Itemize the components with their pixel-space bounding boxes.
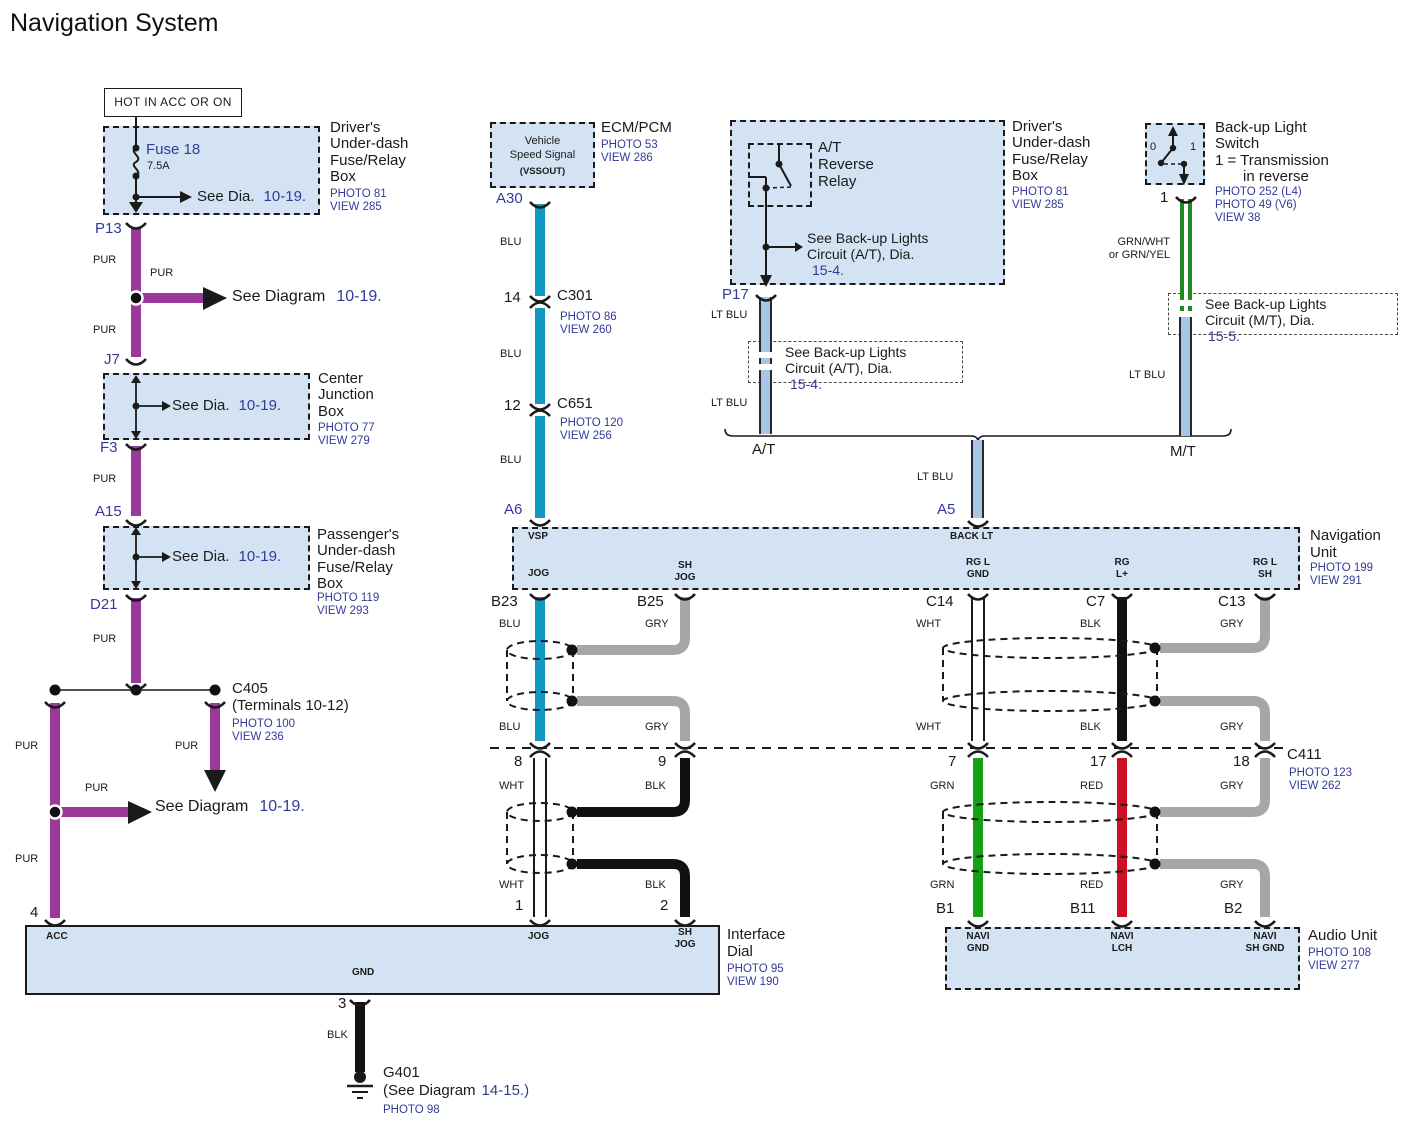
nav-pin-back-lt: BACK LT xyxy=(950,532,993,543)
trans-mt-label: M/T xyxy=(1170,444,1196,460)
driver-box-right-label: Driver'sUnder-dashFuse/RelayBox xyxy=(1012,119,1090,185)
audio-unit-label: Audio Unit xyxy=(1308,928,1377,944)
wire-label-ltblu: LT BLU xyxy=(1129,370,1165,382)
backup-switch-label: Back-up LightSwitch1 = Transmissionin re… xyxy=(1215,120,1329,186)
wire-label-pur: PUR xyxy=(15,854,38,866)
see-backup-at-inbox: See Back-up LightsCircuit (A/T), Dia.15-… xyxy=(807,230,928,278)
driver-box-left-ref: PHOTO 81VIEW 285 xyxy=(330,188,387,214)
interface-dial-ref: PHOTO 95VIEW 190 xyxy=(727,963,784,989)
at-relay-symbol xyxy=(748,145,803,287)
fuse-name: Fuse 18 xyxy=(146,142,200,158)
wire-label-gry: GRY xyxy=(645,619,669,631)
wire-label-blk: BLK xyxy=(327,1030,348,1042)
wiring-diagram: Navigation System HOT IN ACC OR ON Fuse … xyxy=(0,0,1406,1135)
fuse-see-dia: See Dia.10-19. xyxy=(197,189,306,205)
pin-c7: C7 xyxy=(1086,594,1105,610)
pin-j7: J7 xyxy=(104,352,120,368)
driver-box-right-ref: PHOTO 81VIEW 285 xyxy=(1012,186,1069,212)
c405-ref: PHOTO 100VIEW 236 xyxy=(232,718,295,744)
pin-switch-1: 1 xyxy=(1160,190,1168,206)
nav-pin-vsp: VSP xyxy=(528,532,548,543)
wire-label-red: RED xyxy=(1080,880,1103,892)
wire-label-ltblu: LT BLU xyxy=(917,472,953,484)
wire-label-gry: GRY xyxy=(1220,880,1244,892)
pin-b2: B2 xyxy=(1224,901,1242,917)
wire-label-wht: WHT xyxy=(499,880,524,892)
audio-pin-navi-gnd: NAVIGND xyxy=(950,931,1006,954)
c411-ref: PHOTO 123VIEW 262 xyxy=(1289,767,1352,793)
c651-name: C651 xyxy=(557,396,593,412)
pin-1: 1 xyxy=(515,898,523,914)
g401-name: G401 xyxy=(383,1065,420,1081)
wire-label-ltblu: LT BLU xyxy=(711,310,747,322)
ecm-ref: PHOTO 53VIEW 286 xyxy=(601,139,658,165)
wire-label-grn: GRN xyxy=(930,781,954,793)
wire-label-pur: PUR xyxy=(150,268,173,280)
wire-label-blu: BLU xyxy=(500,237,521,249)
wire-label-blk: BLK xyxy=(1080,722,1101,734)
pin-17: 17 xyxy=(1090,754,1107,770)
wire-label-pur: PUR xyxy=(93,474,116,486)
ground-symbol-g401 xyxy=(347,1071,373,1098)
wire-label-blk: BLK xyxy=(645,781,666,793)
shield-drain-wires xyxy=(577,597,1265,917)
wire-label-blu: BLU xyxy=(500,455,521,467)
driver-box-left-label: Driver'sUnder-dashFuse/RelayBox xyxy=(330,120,408,186)
g401-see-diagram: (See Diagram14-15.) xyxy=(383,1083,529,1099)
ecm-name: ECM/PCM xyxy=(601,120,672,136)
pin-b1: B1 xyxy=(936,901,954,917)
nav-pin-jog: JOG xyxy=(528,569,549,580)
passenger-see-dia: See Dia.10-19. xyxy=(172,549,281,565)
pin-9: 9 xyxy=(658,754,666,770)
nav-unit-ref: PHOTO 199VIEW 291 xyxy=(1310,562,1373,588)
g401-ref: PHOTO 98 xyxy=(383,1104,440,1117)
pin-p17: P17 xyxy=(722,287,749,303)
backup-switch-symbol xyxy=(1158,126,1189,185)
hot-in-acc-label: HOT IN ACC OR ON xyxy=(104,88,242,117)
see-diagram-ref-2: See Diagram10-19. xyxy=(155,799,305,816)
pin-c14: C14 xyxy=(926,594,954,610)
see-backup-mt-ref: See Back-up LightsCircuit (M/T), Dia.15-… xyxy=(1205,296,1326,344)
trans-at-label: A/T xyxy=(752,442,775,458)
c411-name: C411 xyxy=(1287,747,1322,763)
wire-label-pur: PUR xyxy=(85,783,108,795)
vss-label: VehicleSpeed Signal(VSSOUT) xyxy=(490,134,595,179)
interface-dial-label: InterfaceDial xyxy=(727,926,785,960)
pin-18: 18 xyxy=(1233,754,1250,770)
pin-a5: A5 xyxy=(937,502,955,518)
backup-switch-ref: PHOTO 252 (L4)PHOTO 49 (V6)VIEW 38 xyxy=(1215,186,1302,225)
cjb-internal-arrow xyxy=(131,375,171,439)
wire-label-red: RED xyxy=(1080,781,1103,793)
pin-7: 7 xyxy=(948,754,956,770)
wire-label-pur: PUR xyxy=(93,325,116,337)
pin-p13: P13 xyxy=(95,221,122,237)
c301-name: C301 xyxy=(557,288,593,304)
pin-4: 4 xyxy=(30,905,38,921)
passenger-box-ref: PHOTO 119VIEW 293 xyxy=(317,592,379,618)
dial-pin-acc: ACC xyxy=(46,932,68,943)
wire-label-pur: PUR xyxy=(175,741,198,753)
wire-label-wht: WHT xyxy=(916,722,941,734)
audio-pin-navi-lch: NAVILCH xyxy=(1094,931,1150,954)
wire-label-blu: BLU xyxy=(500,349,521,361)
wire-label-gry: GRY xyxy=(645,722,669,734)
switch-pos-0: 0 xyxy=(1150,142,1156,154)
shield-junction-dots xyxy=(567,643,1161,870)
wire-label-grnwht: GRN/WHTor GRN/YEL xyxy=(1075,236,1170,262)
pin-8: 8 xyxy=(514,754,522,770)
pin-b23: B23 xyxy=(491,594,518,610)
wire-label-blk: BLK xyxy=(645,880,666,892)
passenger-box-label: Passenger'sUnder-dashFuse/RelayBox xyxy=(317,527,399,593)
wire-label-blu: BLU xyxy=(499,619,520,631)
wire-label-pur: PUR xyxy=(93,634,116,646)
pin-d21: D21 xyxy=(90,597,118,613)
cjb-see-dia: See Dia.10-19. xyxy=(172,398,281,414)
pin-b11: B11 xyxy=(1070,901,1096,917)
c405-terminals: (Terminals 10-12) xyxy=(232,698,349,714)
pin-b25: B25 xyxy=(637,594,664,610)
wire-label-gry: GRY xyxy=(1220,619,1244,631)
page-title: Navigation System xyxy=(10,10,218,37)
wire-label-wht: WHT xyxy=(916,619,941,631)
wire-label-gry: GRY xyxy=(1220,722,1244,734)
pin-2: 2 xyxy=(660,898,668,914)
cjb-label: CenterJunctionBox xyxy=(318,371,374,420)
nav-unit-label: NavigationUnit xyxy=(1310,527,1381,561)
wire-label-gry: GRY xyxy=(1220,781,1244,793)
wire-label-pur: PUR xyxy=(93,255,116,267)
audio-pin-navi-shgnd: NAVISH GND xyxy=(1228,931,1302,954)
pin-c13: C13 xyxy=(1218,594,1246,610)
nav-pin-rg-lplus: RGL+ xyxy=(1094,557,1150,580)
at-relay-label: A/TReverseRelay xyxy=(818,139,874,190)
wire-label-blk: BLK xyxy=(1080,619,1101,631)
pin-a30: A30 xyxy=(496,191,523,207)
passenger-internal-arrow xyxy=(131,527,171,589)
wire-label-blu: BLU xyxy=(499,722,520,734)
pin-14: 14 xyxy=(504,290,521,306)
pin-f3: F3 xyxy=(100,440,118,456)
see-diagram-ref-1: See Diagram10-19. xyxy=(232,289,382,306)
fuse-rating: 7.5A xyxy=(147,161,170,173)
wire-label-wht: WHT xyxy=(499,781,524,793)
nav-pin-sh-jog: SHJOG xyxy=(657,560,713,583)
dial-pin-jog: JOG xyxy=(528,932,549,943)
c651-ref: PHOTO 120VIEW 256 xyxy=(560,417,623,443)
pin-12: 12 xyxy=(504,398,521,414)
wire-label-pur: PUR xyxy=(15,741,38,753)
shield-cylinders xyxy=(507,638,1157,874)
wire-label-grn: GRN xyxy=(930,880,954,892)
nav-pin-rgl-gnd: RG LGND xyxy=(950,557,1006,580)
dial-pin-gnd: GND xyxy=(352,968,374,979)
nav-pin-rgl-sh: RG LSH xyxy=(1237,557,1293,580)
dial-pin-sh-jog: SHJOG xyxy=(657,927,713,950)
wire-label-ltblu: LT BLU xyxy=(711,398,747,410)
switch-pos-1: 1 xyxy=(1190,142,1196,154)
c301-ref: PHOTO 86VIEW 260 xyxy=(560,311,617,337)
audio-unit-ref: PHOTO 108VIEW 277 xyxy=(1308,947,1371,973)
pin-3: 3 xyxy=(338,996,346,1012)
cjb-ref: PHOTO 77VIEW 279 xyxy=(318,422,375,448)
see-backup-at-ref: See Back-up LightsCircuit (A/T), Dia.15-… xyxy=(785,344,906,392)
c405-name: C405 xyxy=(232,681,268,697)
pin-a15: A15 xyxy=(95,504,122,520)
pin-a6: A6 xyxy=(504,502,522,518)
